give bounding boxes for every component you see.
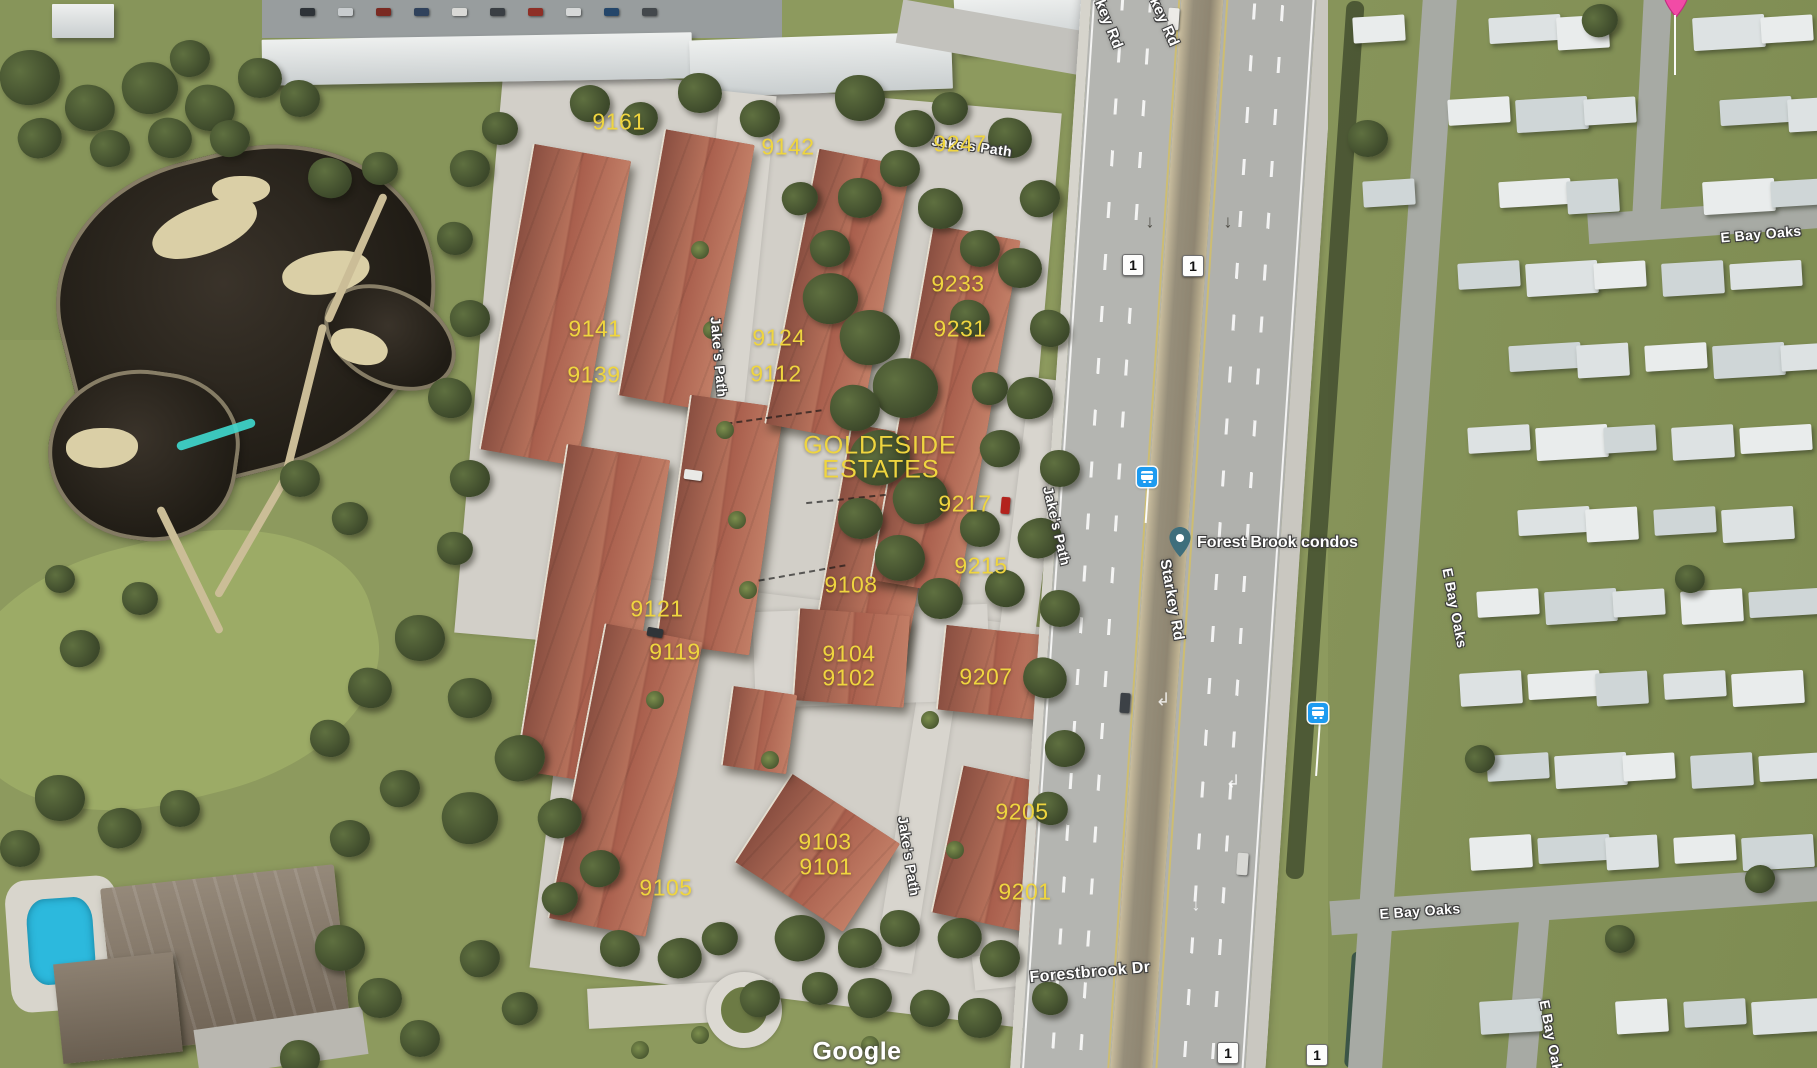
unit-number-label-9124: 9124 (752, 325, 805, 352)
satellite-map-viewport[interactable]: ↓↓↲↲↓ Starkey RdStarkey RdStarkey RdJake… (0, 0, 1817, 1068)
road-label: Starkey Rd (1080, 0, 1127, 51)
unit-number-label-9217: 9217 (938, 491, 991, 518)
unit-number-label-9108: 9108 (824, 572, 877, 599)
road-label: Jake's Path (708, 316, 731, 398)
bus-stop-pole (1145, 485, 1150, 523)
route-shield: 1 (1182, 255, 1204, 277)
bus-stop-icon[interactable] (1308, 703, 1328, 723)
road-label: E Bay Oaks (1536, 999, 1567, 1068)
unit-number-label-9112: 9112 (750, 361, 801, 388)
unit-number-label-9104: 9104 (822, 641, 875, 668)
unit-number-label-9201: 9201 (998, 879, 1051, 906)
road-label: E Bay Oaks (1379, 900, 1461, 922)
unit-number-label-9101: 9101 (799, 854, 852, 881)
bus-glyph (1141, 471, 1153, 480)
estate-name-line-2: ESTATES (822, 456, 939, 485)
unit-number-label-9205: 9205 (995, 799, 1048, 826)
bus-stop-pole (1315, 721, 1321, 776)
road-label: Forestbrook Dr (1029, 959, 1151, 987)
unit-number-label-9102: 9102 (822, 665, 875, 692)
road-label: Jake's Path (895, 815, 923, 897)
route-shield: 1 (1217, 1042, 1239, 1064)
unit-number-label-9215: 9215 (954, 553, 1007, 580)
google-watermark[interactable]: Google (812, 1038, 901, 1067)
map-label-layer: Starkey RdStarkey RdStarkey RdJake's Pat… (0, 0, 1817, 1068)
route-shield: 1 (1306, 1044, 1328, 1066)
unit-number-label-9207: 9207 (959, 664, 1012, 691)
bus-glyph (1312, 707, 1324, 716)
unit-number-label-9119: 9119 (649, 639, 700, 666)
unit-number-label-9161: 9161 (592, 109, 645, 136)
poi-label[interactable]: Forest Brook condos (1197, 534, 1358, 552)
unit-number-label-9231: 9231 (933, 316, 986, 343)
unit-number-label-9142: 9142 (761, 134, 814, 161)
road-label: Starkey Rd (1156, 558, 1187, 642)
unit-number-label-9247: 9247 (933, 131, 986, 158)
unit-number-label-9121: 9121 (630, 596, 683, 623)
unit-number-label-9141: 9141 (568, 316, 621, 343)
road-label: E Bay Oaks (1439, 567, 1470, 650)
road-label: E Bay Oaks (1720, 222, 1802, 245)
unit-number-label-9105: 9105 (639, 875, 692, 902)
unit-number-label-9103: 9103 (798, 829, 851, 856)
unit-number-label-9233: 9233 (931, 271, 984, 298)
bus-stop-icon[interactable] (1137, 467, 1157, 487)
route-shield: 1 (1122, 254, 1144, 276)
road-label: Jake's Path (1040, 485, 1074, 567)
road-label: Starkey Rd (1133, 0, 1182, 49)
dropped-pin-stem (1674, 15, 1676, 75)
unit-number-label-9139: 9139 (567, 362, 620, 389)
